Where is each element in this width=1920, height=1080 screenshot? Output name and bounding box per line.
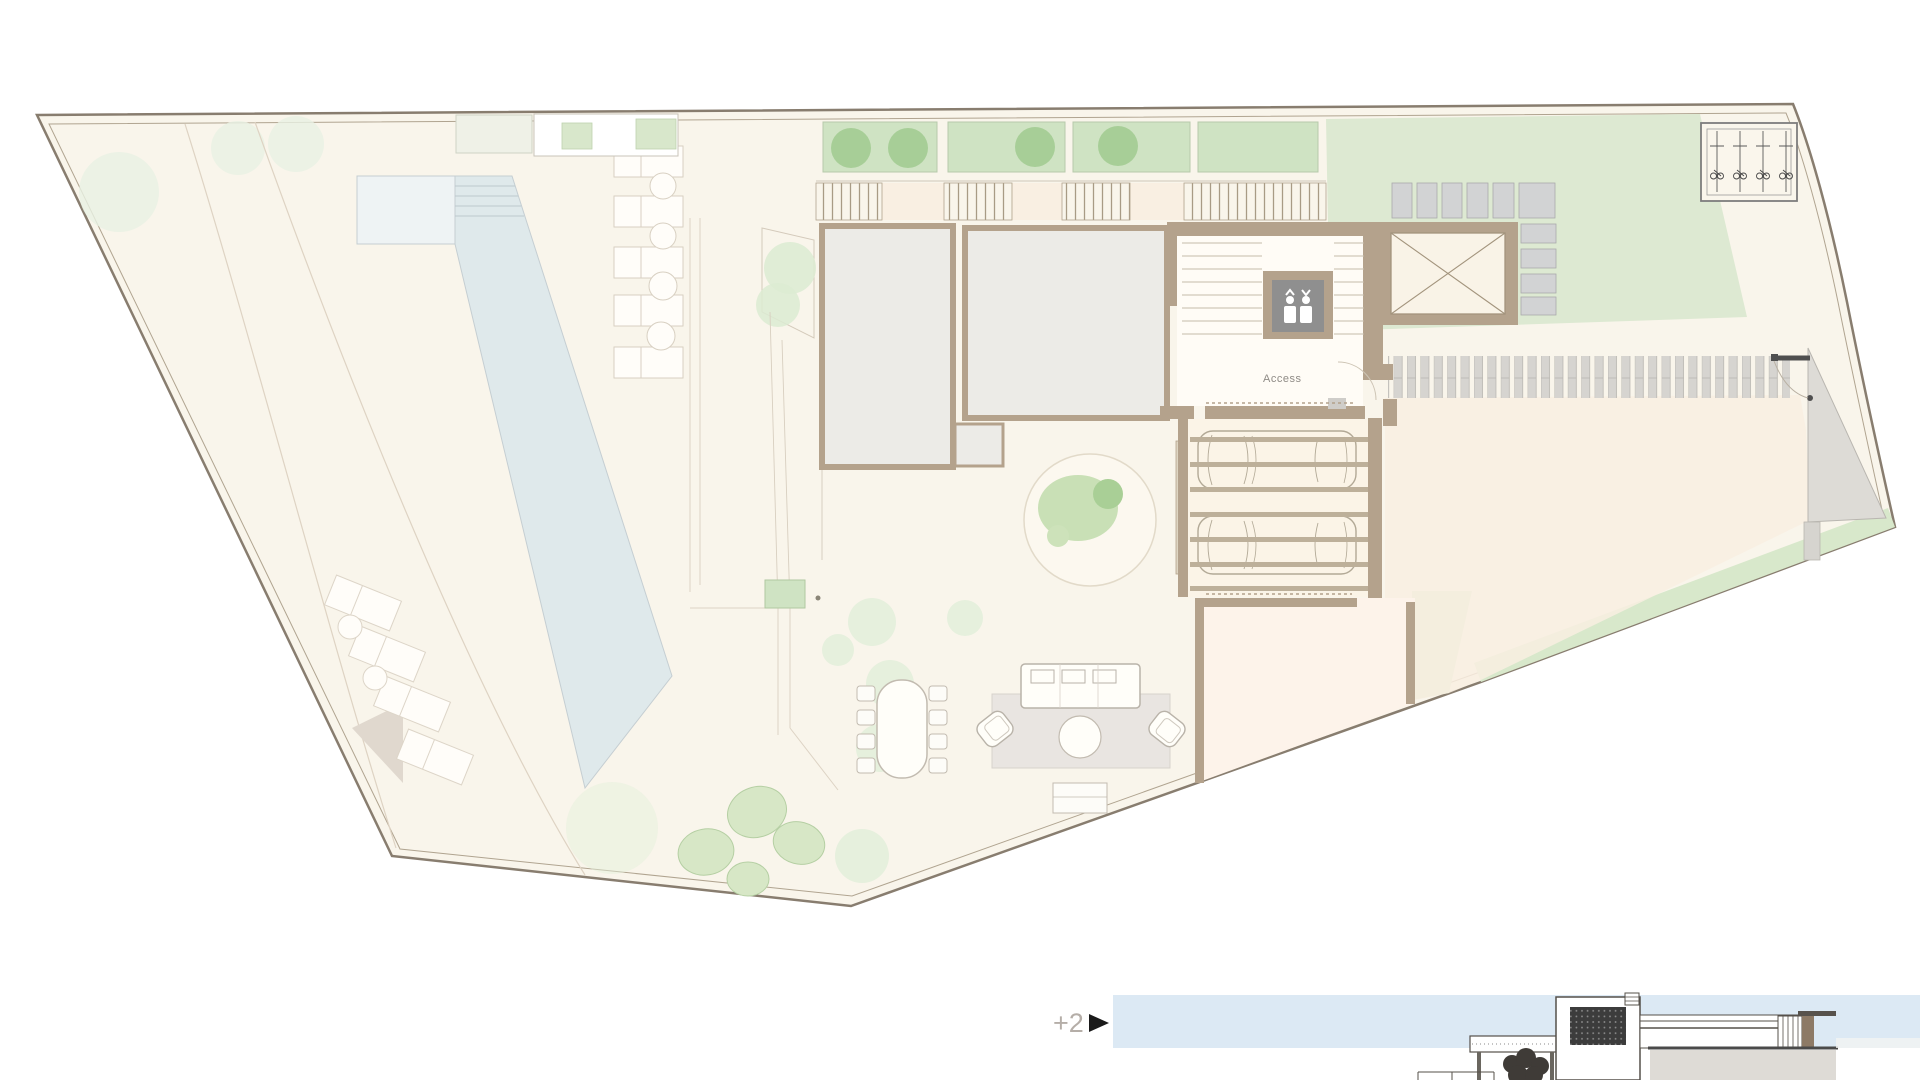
- right-triangle-level-marker-icon: [1089, 1014, 1109, 1032]
- pergola-louvers: [816, 181, 1326, 220]
- elevator-icon: [1263, 271, 1333, 339]
- dining-table: [877, 680, 927, 778]
- paver-crossing: [1388, 356, 1790, 398]
- plan-sheet: Access: [0, 0, 1920, 1080]
- elevation-section: +2: [1053, 993, 1920, 1080]
- room-upper-right: [965, 228, 1167, 418]
- survey-dot: [816, 596, 821, 601]
- elevation-louver-panel: [1570, 1007, 1626, 1045]
- sofa: [1021, 664, 1140, 708]
- crossed-void-icon: [1378, 222, 1518, 325]
- terrace-paving: [1385, 395, 1810, 700]
- planter-box-small: [765, 580, 805, 608]
- courtyard-tree-icon: [1024, 454, 1156, 586]
- ottoman: [1053, 783, 1107, 813]
- coffee-table: [1059, 716, 1101, 758]
- elevation-main-block: [1556, 993, 1640, 1080]
- room-upper-left: [822, 226, 953, 467]
- room-stub: [955, 424, 1003, 466]
- stair-hall: Access: [1167, 222, 1393, 406]
- site-plan-drawing: Access: [0, 0, 1920, 1080]
- room-below-garage: [1195, 598, 1415, 783]
- level-marker: +2: [1053, 1008, 1084, 1038]
- access-label: Access: [1263, 373, 1301, 385]
- bicycle-shed: [1701, 123, 1797, 201]
- elevation-tree-icon: [1503, 1048, 1549, 1080]
- pool-house: [456, 114, 678, 156]
- garage: [1160, 398, 1397, 598]
